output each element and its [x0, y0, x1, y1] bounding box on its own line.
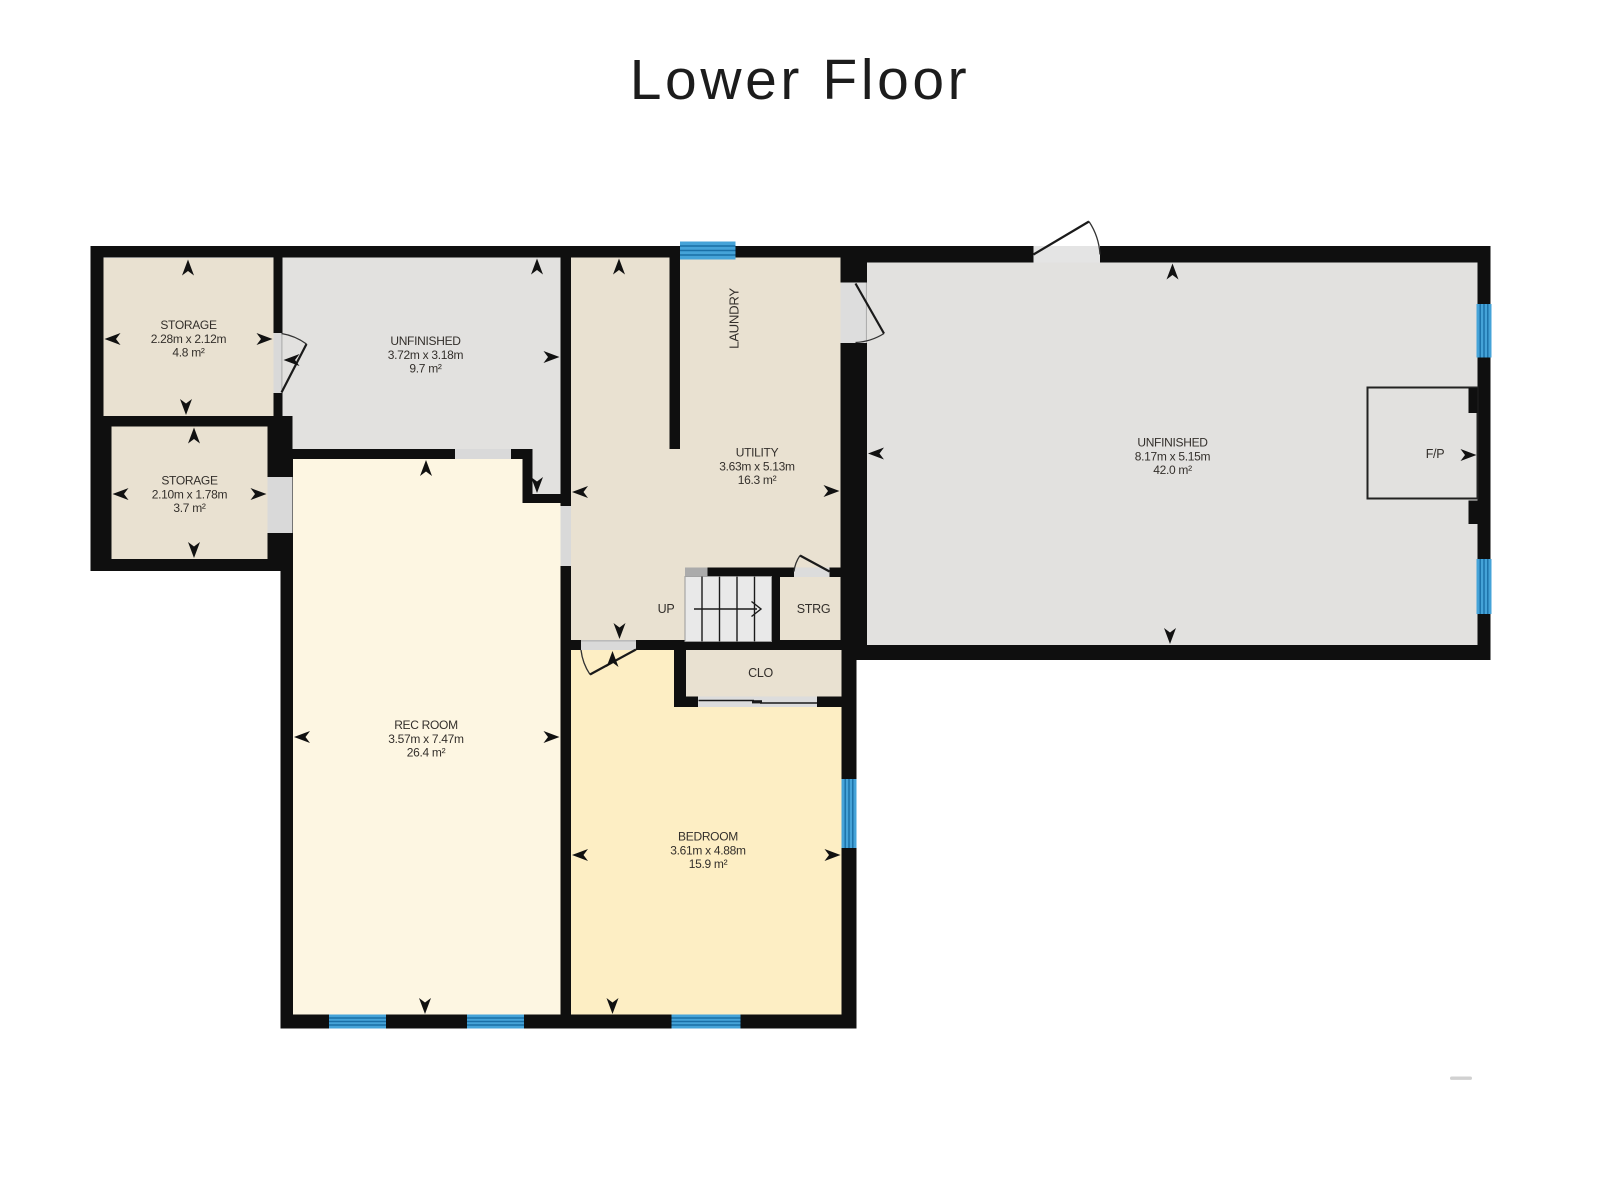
svg-text:8.17m x 5.15m: 8.17m x 5.15m	[1135, 449, 1211, 463]
svg-text:42.0 m²: 42.0 m²	[1153, 463, 1192, 477]
svg-text:16.3 m²: 16.3 m²	[738, 473, 777, 487]
svg-text:STORAGE: STORAGE	[160, 318, 217, 332]
svg-text:LAUNDRY: LAUNDRY	[727, 288, 742, 349]
svg-text:CLO: CLO	[748, 666, 773, 680]
svg-text:BEDROOM: BEDROOM	[678, 830, 738, 844]
svg-text:15.9 m²: 15.9 m²	[689, 857, 728, 871]
svg-text:STORAGE: STORAGE	[161, 474, 218, 488]
svg-text:UTILITY: UTILITY	[736, 446, 779, 460]
svg-text:3.57m x 7.47m: 3.57m x 7.47m	[388, 732, 464, 746]
svg-text:UNFINISHED: UNFINISHED	[390, 334, 461, 348]
svg-text:3.72m x 3.18m: 3.72m x 3.18m	[388, 348, 464, 362]
svg-text:4.8 m²: 4.8 m²	[172, 345, 205, 359]
svg-text:2.28m x 2.12m: 2.28m x 2.12m	[151, 332, 227, 346]
svg-text:UNFINISHED: UNFINISHED	[1137, 436, 1208, 450]
svg-text:UP: UP	[658, 602, 675, 616]
svg-text:2.10m x 1.78m: 2.10m x 1.78m	[152, 487, 228, 501]
svg-text:3.63m x 5.13m: 3.63m x 5.13m	[719, 459, 795, 473]
svg-text:STRG: STRG	[797, 602, 831, 616]
svg-text:F/P: F/P	[1426, 447, 1445, 461]
svg-text:3.7 m²: 3.7 m²	[173, 501, 206, 515]
svg-text:9.7 m²: 9.7 m²	[409, 361, 442, 375]
svg-text:3.61m x 4.88m: 3.61m x 4.88m	[670, 843, 746, 857]
svg-text:REC ROOM: REC ROOM	[394, 718, 458, 732]
svg-text:26.4 m²: 26.4 m²	[407, 745, 446, 759]
